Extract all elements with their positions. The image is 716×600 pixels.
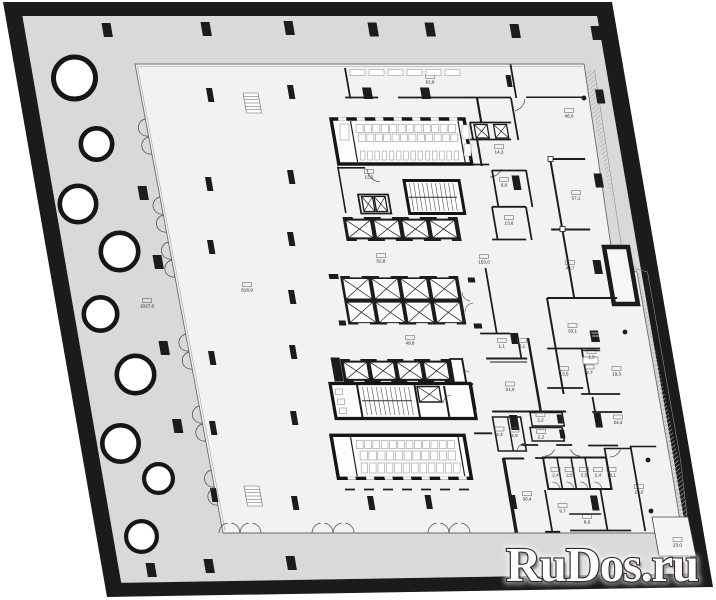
- svg-text:1,1: 1,1: [499, 344, 506, 349]
- svg-text:2,5: 2,5: [566, 473, 573, 478]
- svg-text:62,9: 62,9: [426, 80, 435, 85]
- svg-text:30,4: 30,4: [523, 497, 532, 502]
- svg-text:21,0: 21,0: [506, 387, 515, 392]
- svg-text:13,5: 13,5: [560, 372, 569, 377]
- svg-text:29,0: 29,0: [635, 490, 644, 495]
- svg-text:33,1: 33,1: [568, 329, 577, 334]
- svg-text:818,9: 818,9: [241, 288, 253, 293]
- svg-text:2,7: 2,7: [586, 370, 593, 375]
- svg-text:1,9: 1,9: [588, 355, 595, 360]
- svg-text:8,6: 8,6: [584, 520, 591, 525]
- svg-text:14,3: 14,3: [495, 150, 504, 155]
- svg-text:2,5: 2,5: [581, 473, 588, 478]
- svg-text:9,7: 9,7: [559, 509, 566, 514]
- svg-text:13,6: 13,6: [505, 221, 514, 226]
- svg-text:2,2: 2,2: [537, 418, 544, 423]
- svg-text:12,2: 12,2: [365, 175, 374, 180]
- svg-text:1027,6: 1027,6: [140, 304, 154, 309]
- svg-text:57,1: 57,1: [572, 196, 581, 201]
- svg-text:46,0: 46,0: [565, 114, 574, 119]
- svg-text:3,1: 3,1: [519, 344, 526, 349]
- svg-text:2,4: 2,4: [552, 473, 559, 478]
- svg-text:9,0: 9,0: [501, 183, 508, 188]
- svg-text:RuDos.ru: RuDos.ru: [506, 539, 698, 592]
- svg-text:2,2: 2,2: [538, 435, 545, 440]
- svg-text:49,8: 49,8: [406, 341, 415, 346]
- svg-text:40,7: 40,7: [566, 266, 575, 271]
- svg-text:52,8: 52,8: [377, 259, 386, 264]
- svg-text:153,0: 153,0: [478, 260, 490, 265]
- svg-text:2,4: 2,4: [595, 473, 602, 478]
- svg-text:24,4: 24,4: [614, 420, 623, 425]
- svg-text:19,3: 19,3: [612, 372, 621, 377]
- svg-text:2,4: 2,4: [496, 432, 503, 437]
- svg-text:2,9: 2,9: [511, 433, 518, 438]
